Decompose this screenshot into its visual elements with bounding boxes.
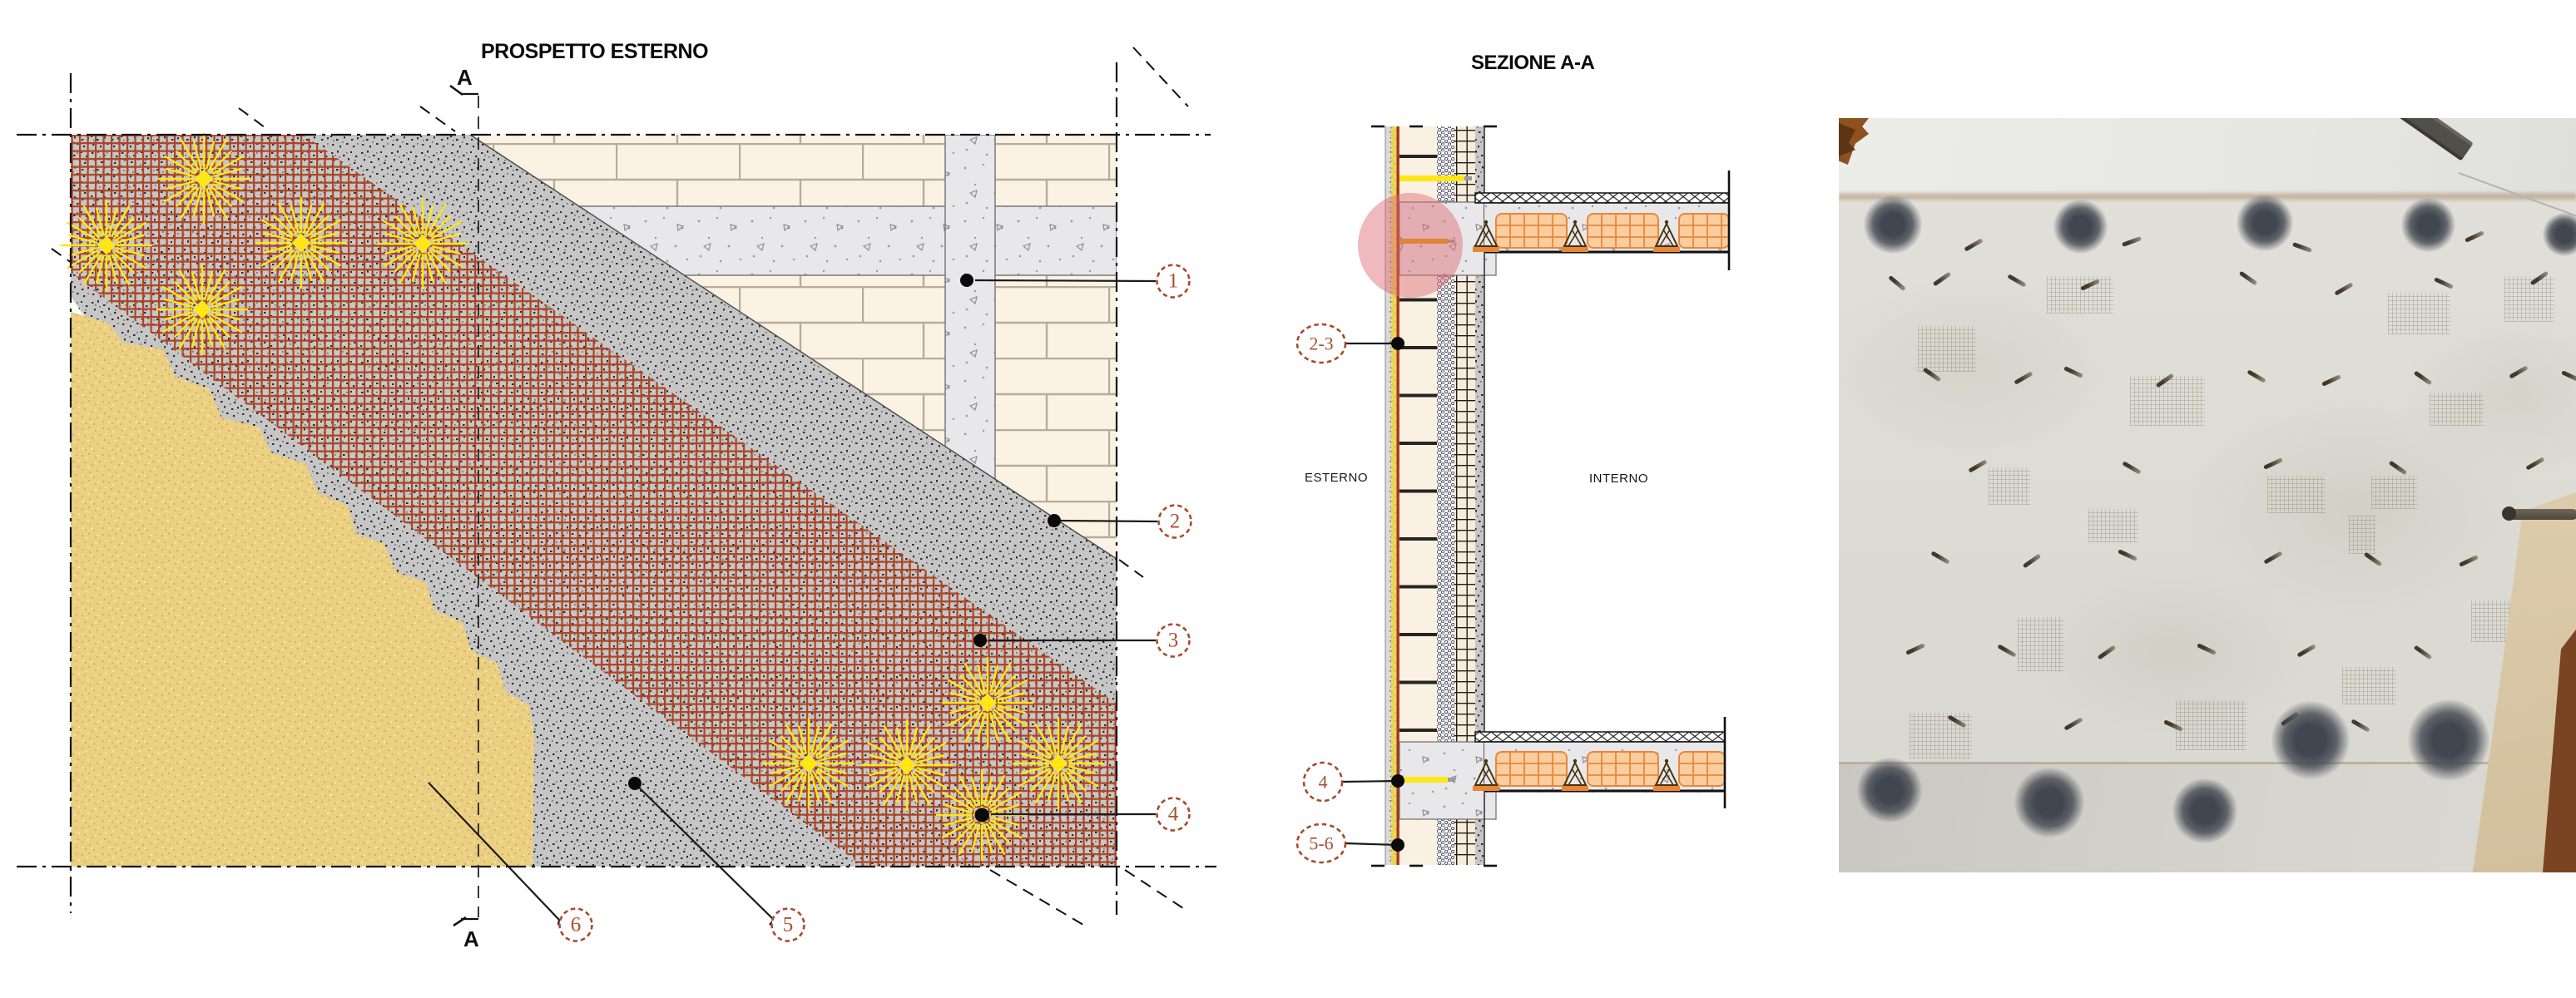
sezione-drawing: 2-345-6 (1297, 126, 1729, 866)
anchor-spot (2237, 195, 2293, 251)
anchor-bar (1399, 175, 1464, 181)
site-photo (1839, 118, 2576, 872)
mesh-imprint-patch (2176, 700, 2247, 750)
callout-number: 3 (1168, 630, 1179, 652)
callout-number: 5 (783, 914, 794, 936)
prospetto-title: PROSPETTO ESTERNO (481, 40, 708, 64)
section-marker-a-top: A (457, 65, 473, 91)
hollow-clay-block (1496, 752, 1567, 786)
joist-base (1473, 247, 1499, 252)
concrete-column (945, 135, 995, 484)
mesh-imprint-patch (1918, 326, 1976, 372)
hollow-clay-block (1679, 752, 1725, 786)
mesh-imprint-patch (2088, 509, 2138, 542)
anchor-spot (2408, 699, 2490, 782)
mesh-imprint-patch (2430, 393, 2484, 426)
joist-base (1653, 247, 1680, 252)
screed-hatch (1475, 193, 1729, 203)
anchor-bar (1401, 777, 1448, 783)
anchor-spot (2014, 768, 2083, 837)
mesh-imprint-patch (1910, 713, 1972, 758)
hollow-clay-block (1588, 752, 1658, 786)
steel-rod-tip (2502, 506, 2516, 521)
steel-rod (2509, 509, 2576, 520)
anchor-spot (2053, 200, 2108, 254)
detail-highlight (1358, 193, 1463, 298)
mesh-imprint-patch (2130, 376, 2205, 426)
mesh-imprint-patch (2388, 293, 2450, 334)
joist-base (1562, 247, 1588, 252)
joist-base (1562, 786, 1588, 791)
mesh-imprint-patch (2047, 276, 2113, 314)
mesh-imprint-patch (1989, 467, 2030, 505)
hollow-clay-block (1496, 214, 1567, 248)
mesh-imprint-patch (2349, 516, 2375, 554)
mesh-imprint-patch (2504, 276, 2554, 322)
joist-base (1473, 786, 1499, 791)
mesh-imprint-patch (2342, 667, 2396, 704)
callout-number: 4 (1168, 803, 1179, 826)
callout-number: 1 (1168, 270, 1179, 293)
page-canvas: 123456 2-345-6 PROSPETTO ESTERNO SEZIONE… (0, 0, 2576, 998)
sezione-title: SEZIONE A-A (1471, 52, 1594, 75)
esterno-label: ESTERNO (1305, 471, 1368, 485)
hollow-clay-block (1588, 214, 1658, 248)
anchor-spot (2401, 198, 2455, 252)
floor-slab (1473, 717, 1725, 808)
interno-label: INTERNO (1589, 472, 1648, 486)
section-marker-a-bottom: A (463, 926, 479, 952)
mesh-imprint-patch (2371, 476, 2417, 509)
anchor-spot (2271, 701, 2350, 779)
screed-hatch (1475, 732, 1725, 742)
callout-number: 5-6 (1309, 833, 1333, 854)
mesh-imprint-patch (2018, 617, 2063, 671)
anchor-spot (1864, 195, 1922, 254)
anchor-spot (1857, 758, 1922, 823)
floor-slab (1473, 170, 1729, 270)
photo-ceiling (1839, 118, 2576, 197)
joist-base (1653, 786, 1680, 791)
callout-number: 6 (571, 914, 582, 936)
anchor-spot (2172, 778, 2237, 843)
photo-wall-top-smudge (1839, 191, 2576, 201)
photo-wall (1839, 197, 2576, 763)
callout-number: 2-3 (1309, 333, 1333, 354)
mesh-imprint-patch (2267, 476, 2326, 513)
callout-number: 4 (1319, 772, 1328, 793)
callout-number: 2 (1170, 511, 1181, 533)
prospetto-drawing: 123456 (17, 47, 1216, 941)
